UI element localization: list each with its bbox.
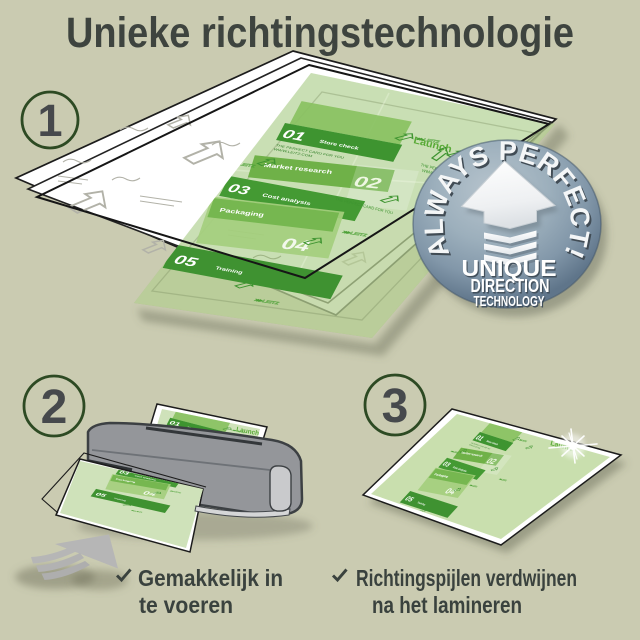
svg-text:1: 1 (37, 95, 62, 146)
svg-text:3: 3 (382, 380, 409, 433)
svg-text:Gemakkelijk in: Gemakkelijk in (138, 565, 283, 591)
svg-text:2: 2 (41, 381, 68, 434)
svg-text:TECHNOLOGY: TECHNOLOGY (474, 293, 545, 310)
svg-text:na het lamineren: na het lamineren (372, 592, 522, 618)
svg-text:Richtingspijlen verdwijnen: Richtingspijlen verdwijnen (356, 565, 577, 591)
svg-text:te voeren: te voeren (139, 592, 233, 618)
svg-text:Unieke richtingstechnologie: Unieke richtingstechnologie (66, 9, 574, 57)
